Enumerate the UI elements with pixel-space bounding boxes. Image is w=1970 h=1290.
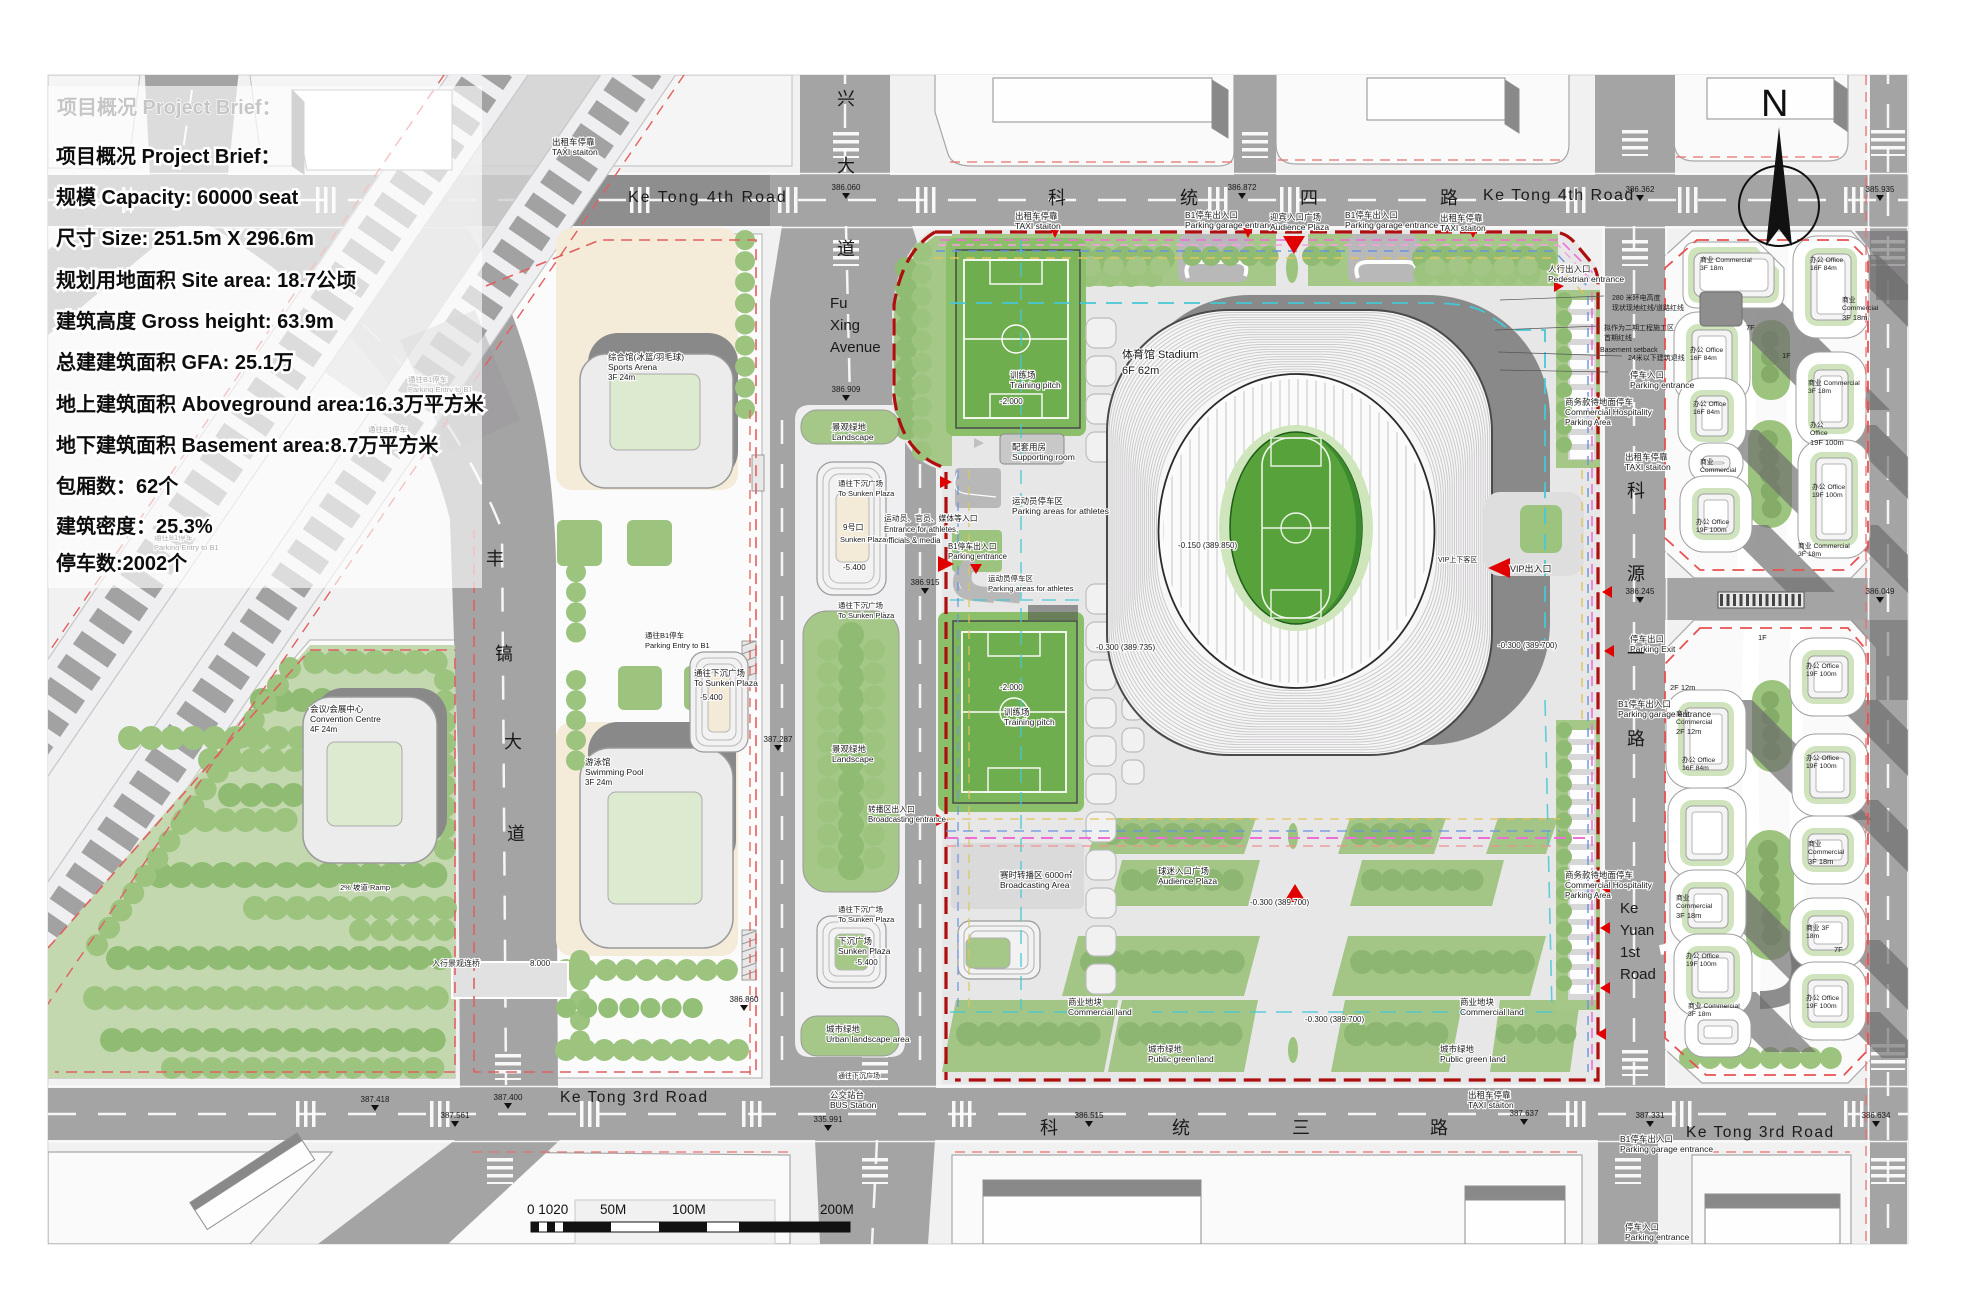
svg-text:-0.300 (389.700): -0.300 (389.700) [1305, 1015, 1364, 1024]
svg-text:Ke Tong 4th Road: Ke Tong 4th Road [628, 189, 788, 206]
svg-text:拟作为二期工程施工区: 拟作为二期工程施工区 [1604, 323, 1674, 332]
svg-text:Parking Entry to B1: Parking Entry to B1 [645, 641, 710, 650]
svg-text:386.872: 386.872 [1228, 183, 1257, 192]
svg-text:19F 100m: 19F 100m [1806, 1003, 1837, 1010]
svg-text:Broadcasting entrance: Broadcasting entrance [868, 815, 946, 824]
svg-text:景观绿地: 景观绿地 [832, 744, 867, 754]
svg-text:Sunken Plaza: Sunken Plaza [840, 535, 887, 544]
svg-text:商业 Commercial: 商业 Commercial [1688, 1001, 1740, 1010]
svg-text:3F 18m: 3F 18m [1808, 857, 1833, 866]
svg-text:规模 Capacity: 60000 seat: 规模 Capacity: 60000 seat [56, 185, 299, 209]
svg-text:商业: 商业 [1808, 839, 1822, 848]
svg-text:100M: 100M [672, 1202, 706, 1217]
svg-text:办公 Office: 办公 Office [1696, 517, 1729, 526]
svg-text:停车入口: 停车入口 [1625, 1222, 1659, 1232]
svg-text:现状现地红线/道路红线: 现状现地红线/道路红线 [1612, 303, 1684, 312]
svg-text:商业: 商业 [1676, 709, 1690, 718]
svg-text:办公 Office: 办公 Office [1693, 399, 1726, 408]
svg-text:0 1020: 0 1020 [527, 1202, 568, 1217]
svg-text:19F 100m: 19F 100m [1810, 438, 1844, 447]
svg-text:386.049: 386.049 [1866, 587, 1895, 596]
svg-text:Commercial: Commercial [1676, 719, 1713, 726]
svg-text:停车数:2002个: 停车数:2002个 [56, 551, 188, 575]
svg-text:3F 18m: 3F 18m [1842, 313, 1867, 322]
svg-text:Commercial land: Commercial land [1068, 1007, 1132, 1017]
svg-text:入行景观连桥: 入行景观连桥 [432, 958, 480, 968]
svg-text:Pedestrian entrance: Pedestrian entrance [1548, 274, 1624, 284]
svg-text:-5.400: -5.400 [855, 958, 878, 967]
svg-text:386.515: 386.515 [1075, 1111, 1104, 1120]
svg-text:B1停车出入口: B1停车出入口 [1620, 1134, 1673, 1144]
svg-text:Ke Tong 3rd Road: Ke Tong 3rd Road [560, 1089, 709, 1106]
svg-text:To Sunken Plaza: To Sunken Plaza [838, 611, 895, 620]
svg-text:Parking garage entrance: Parking garage entrance [1345, 220, 1438, 230]
svg-text:1F: 1F [1782, 351, 1791, 360]
svg-text:综合馆(冰篮/羽毛球): 综合馆(冰篮/羽毛球) [608, 352, 684, 362]
svg-text:商业 Commercial: 商业 Commercial [1700, 255, 1752, 264]
svg-text:19F 100m: 19F 100m [1696, 527, 1727, 534]
svg-text:Parking entrance: Parking entrance [1625, 1232, 1690, 1242]
svg-text:B1停车出入口: B1停车出入口 [1185, 210, 1238, 220]
svg-text:B1停车出入口: B1停车出入口 [1345, 210, 1398, 220]
svg-text:B1停车出入口: B1停车出入口 [948, 541, 997, 551]
svg-text:建筑高度 Gross height: 63.9m: 建筑高度 Gross height: 63.9m [56, 309, 334, 333]
svg-text:规划用地面积 Site area: 18.7公顷: 规划用地面积 Site area: 18.7公顷 [56, 269, 356, 292]
svg-text:3F 18m: 3F 18m [1676, 911, 1701, 920]
svg-text:Parking garage entrance: Parking garage entrance [1618, 709, 1711, 719]
svg-text:出租车停靠: 出租车停靠 [1625, 452, 1668, 462]
svg-text:6F 62m: 6F 62m [1122, 365, 1159, 377]
svg-text:2F 12m: 2F 12m [1670, 683, 1695, 692]
svg-text:一: 一 [1627, 644, 1645, 664]
svg-text:总建建筑面积 GFA: 25.1万: 总建建筑面积 GFA: 25.1万 [56, 350, 294, 374]
svg-text:Sunken Plaza: Sunken Plaza [838, 946, 891, 956]
svg-text:赛时转播区 6000㎡: 赛时转播区 6000㎡ [1000, 870, 1073, 880]
svg-text:建筑密度：25.3%: 建筑密度：25.3% [56, 514, 213, 538]
svg-text:通往下沉广场: 通往下沉广场 [838, 904, 883, 914]
svg-text:19F 100m: 19F 100m [1806, 763, 1837, 770]
svg-text:路: 路 [1440, 188, 1458, 208]
svg-text:280 米环电高度: 280 米环电高度 [1612, 293, 1661, 302]
svg-text:大: 大 [837, 156, 855, 176]
svg-text:Training pitch: Training pitch [1004, 717, 1055, 727]
svg-text:办公 Office: 办公 Office [1690, 345, 1723, 354]
svg-text:Supporting room: Supporting room [1012, 452, 1075, 462]
svg-text:386.634: 386.634 [1862, 1111, 1891, 1120]
svg-text:办公 Office: 办公 Office [1806, 753, 1839, 762]
svg-text:统: 统 [1180, 188, 1198, 208]
svg-text:首期红线: 首期红线 [1604, 333, 1632, 342]
svg-text:To Sunken Plaza: To Sunken Plaza [838, 489, 895, 498]
svg-text:To Sunken Plaza: To Sunken Plaza [694, 678, 758, 688]
svg-text:3F 18m: 3F 18m [1798, 551, 1821, 558]
svg-text:商业: 商业 [1676, 893, 1690, 902]
svg-text:通往下沉广场: 通往下沉广场 [838, 600, 883, 610]
svg-text:Swimming Pool: Swimming Pool [585, 767, 644, 777]
svg-text:4F 24m: 4F 24m [310, 725, 337, 734]
svg-text:停车入口: 停车入口 [1630, 370, 1664, 380]
svg-text:TAXI staiton: TAXI staiton [1440, 223, 1486, 233]
svg-text:通往下沉广场: 通往下沉广场 [838, 478, 883, 488]
svg-text:球迷入口广场: 球迷入口广场 [1158, 866, 1209, 876]
svg-text:1st: 1st [1620, 944, 1641, 961]
svg-text:387.400: 387.400 [494, 1093, 523, 1102]
svg-text:商务款待地面停车: 商务款待地面停车 [1565, 870, 1633, 880]
svg-text:迎宾入口广场: 迎宾入口广场 [1270, 212, 1321, 222]
svg-text:通往B1停车: 通往B1停车 [645, 630, 685, 640]
svg-text:387.287: 387.287 [764, 735, 793, 744]
svg-text:Parking garage entrance: Parking garage entrance [1620, 1144, 1713, 1154]
svg-text:-2.000: -2.000 [1000, 397, 1023, 406]
svg-text:2F 12m: 2F 12m [1676, 727, 1701, 736]
svg-text:尺寸 Size: 251.5m X 296.6m: 尺寸 Size: 251.5m X 296.6m [56, 227, 314, 250]
svg-text:商业地块: 商业地块 [1460, 997, 1495, 1007]
svg-text:386.060: 386.060 [832, 183, 861, 192]
svg-text:386.909: 386.909 [832, 385, 861, 394]
svg-text:B1停车出入口: B1停车出入口 [1618, 699, 1671, 709]
svg-text:出租车停靠: 出租车停靠 [1468, 1090, 1511, 1100]
svg-text:Convention Centre: Convention Centre [310, 714, 381, 724]
svg-text:-0.300 (389.700): -0.300 (389.700) [1498, 641, 1557, 650]
svg-text:Road: Road [1620, 966, 1656, 983]
svg-text:办公 Office: 办公 Office [1682, 755, 1715, 764]
svg-text:16F 84m: 16F 84m [1693, 409, 1720, 416]
svg-text:包厢数：62个: 包厢数：62个 [56, 474, 179, 498]
svg-text:Public green land: Public green land [1440, 1054, 1506, 1064]
svg-text:道: 道 [507, 824, 525, 844]
svg-text:Parking Area: Parking Area [1565, 891, 1611, 900]
svg-text:officials & media: officials & media [884, 536, 941, 545]
svg-text:办公 Office: 办公 Office [1812, 482, 1845, 491]
svg-text:运动员停车区: 运动员停车区 [988, 573, 1033, 583]
svg-text:16F 84m: 16F 84m [1690, 355, 1717, 362]
svg-text:Commercial land: Commercial land [1460, 1007, 1524, 1017]
svg-text:16F 84m: 16F 84m [1682, 765, 1709, 772]
svg-text:Ke: Ke [1620, 900, 1638, 917]
svg-text:9号口: 9号口 [843, 523, 863, 532]
svg-text:Xing: Xing [830, 317, 860, 334]
svg-text:停车出口: 停车出口 [1630, 634, 1664, 644]
svg-text:Landscape: Landscape [832, 754, 874, 764]
svg-text:城市绿地: 城市绿地 [826, 1024, 861, 1034]
svg-text:16F 84m: 16F 84m [1810, 265, 1837, 272]
svg-text:3F 18m: 3F 18m [1808, 388, 1831, 395]
svg-text:Commercial Hospitality: Commercial Hospitality [1565, 407, 1653, 417]
svg-text:办公 Office: 办公 Office [1806, 661, 1839, 670]
svg-text:路: 路 [1430, 1118, 1448, 1138]
svg-text:Commercial Hospitality: Commercial Hospitality [1565, 880, 1653, 890]
svg-text:公交站台: 公交站台 [830, 1090, 864, 1100]
svg-text:源: 源 [1627, 564, 1645, 584]
svg-text:Landscape: Landscape [832, 432, 874, 442]
svg-text:Avenue: Avenue [830, 339, 881, 356]
svg-text:Office: Office [1810, 430, 1828, 437]
svg-text:-2.000: -2.000 [1000, 683, 1023, 692]
svg-text:50M: 50M [600, 1202, 626, 1217]
svg-text:3F 24m: 3F 24m [608, 373, 635, 382]
svg-text:丰: 丰 [486, 549, 504, 569]
svg-text:Ke Tong 3rd Road: Ke Tong 3rd Road [1686, 1124, 1835, 1141]
svg-text:科: 科 [1627, 481, 1645, 501]
svg-text:Ke Tong 4th Road: Ke Tong 4th Road [1483, 187, 1635, 204]
svg-text:2% 坡道 Ramp: 2% 坡道 Ramp [340, 882, 390, 892]
svg-text:387.418: 387.418 [361, 1095, 390, 1104]
svg-text:Parking entrance: Parking entrance [948, 552, 1007, 561]
svg-text:Parking areas for athletes: Parking areas for athletes [1012, 506, 1109, 516]
svg-text:Audience Plaza: Audience Plaza [1158, 876, 1217, 886]
svg-text:3F 18m: 3F 18m [1688, 1011, 1711, 1018]
svg-text:386.245: 386.245 [1626, 587, 1655, 596]
svg-text:Broadcasting Area: Broadcasting Area [1000, 880, 1070, 890]
svg-text:运动员停车区: 运动员停车区 [1012, 496, 1064, 506]
svg-text:3F 24m: 3F 24m [585, 778, 612, 787]
svg-text:19F 100m: 19F 100m [1812, 492, 1843, 499]
svg-text:TAXI staiton: TAXI staiton [1468, 1100, 1514, 1110]
svg-text:Commercial: Commercial [1676, 903, 1713, 910]
svg-text:项目概况 Project Brief：: 项目概况 Project Brief： [57, 96, 281, 119]
svg-text:训练场: 训练场 [1010, 370, 1036, 380]
svg-text:VIP上下客区: VIP上下客区 [1438, 555, 1477, 564]
svg-text:通往下沉广场: 通往下沉广场 [838, 1071, 880, 1080]
svg-text:19F 100m: 19F 100m [1806, 671, 1837, 678]
svg-text:Basement setback: Basement setback [1600, 347, 1658, 354]
svg-text:TAXI staiton: TAXI staiton [1625, 462, 1671, 472]
svg-text:3F 18m: 3F 18m [1700, 265, 1723, 272]
svg-text:游泳馆: 游泳馆 [585, 757, 611, 767]
svg-text:运动员、官员、媒体等入口: 运动员、官员、媒体等入口 [884, 513, 978, 523]
svg-text:385.935: 385.935 [1866, 185, 1895, 194]
svg-text:386.915: 386.915 [911, 578, 940, 587]
svg-text:商业 Commercial: 商业 Commercial [1798, 541, 1850, 550]
svg-text:-0.150 (389.850): -0.150 (389.850) [1178, 541, 1237, 550]
svg-text:VIP出入口: VIP出入口 [1510, 563, 1552, 574]
svg-text:TAXI staiton: TAXI staiton [1015, 221, 1061, 231]
svg-text:地上建筑面积 Aboveground area:16.3万平: 地上建筑面积 Aboveground area:16.3万平方米 [56, 392, 485, 416]
svg-text:商业: 商业 [1842, 295, 1856, 304]
svg-text:办公 Office: 办公 Office [1806, 993, 1839, 1002]
svg-text:-0.300 (389.735): -0.300 (389.735) [1096, 643, 1155, 652]
svg-text:Commercial: Commercial [1808, 849, 1845, 856]
svg-text:Audience Plaza: Audience Plaza [1270, 222, 1329, 232]
svg-text:科: 科 [1040, 1118, 1058, 1138]
svg-text:下沉广场: 下沉广场 [838, 936, 872, 946]
svg-text:镐: 镐 [495, 644, 513, 664]
svg-text:Sports Arena: Sports Arena [608, 362, 657, 372]
svg-text:18m: 18m [1806, 933, 1820, 940]
svg-text:Parking entrance: Parking entrance [1630, 380, 1695, 390]
svg-text:出租车停靠: 出租车停靠 [1440, 213, 1483, 223]
svg-text:人行出入口: 人行出入口 [1548, 264, 1591, 274]
svg-text:商务款待地面停车: 商务款待地面停车 [1565, 397, 1633, 407]
svg-text:办公 Office: 办公 Office [1686, 951, 1719, 960]
svg-text:Fu: Fu [830, 295, 848, 312]
svg-text:办公: 办公 [1810, 420, 1824, 429]
svg-text:19F 100m: 19F 100m [1686, 961, 1717, 968]
svg-text:兴: 兴 [837, 89, 855, 109]
svg-text:BUS Station: BUS Station [830, 1100, 877, 1110]
svg-text:8.000: 8.000 [530, 959, 551, 968]
svg-text:Urban landscape area: Urban landscape area [826, 1034, 910, 1044]
svg-text:Parking garage entrance: Parking garage entrance [1185, 220, 1278, 230]
svg-text:景观绿地: 景观绿地 [832, 422, 867, 432]
svg-text:商业 3F: 商业 3F [1806, 923, 1829, 932]
svg-text:Parking Area: Parking Area [1565, 418, 1611, 427]
svg-text:N: N [1761, 83, 1788, 125]
svg-text:-5.400: -5.400 [843, 563, 866, 572]
svg-text:地下建筑面积 Basement area:8.7万平方米: 地下建筑面积 Basement area:8.7万平方米 [56, 433, 439, 457]
svg-text:城市绿地: 城市绿地 [1440, 1044, 1475, 1054]
svg-text:科: 科 [1048, 188, 1066, 208]
svg-text:转播区出入口: 转播区出入口 [868, 804, 915, 814]
svg-text:200M: 200M [820, 1202, 854, 1217]
svg-text:1F: 1F [1758, 633, 1767, 642]
svg-text:出租车停靠: 出租车停靠 [1015, 211, 1058, 221]
svg-text:出租车停靠: 出租车停靠 [552, 137, 595, 147]
svg-text:-0.300 (389.700): -0.300 (389.700) [1250, 898, 1309, 907]
svg-text:项目概况 Project Brief：: 项目概况 Project Brief： [56, 145, 280, 168]
svg-text:Entrance for athletes,: Entrance for athletes, [884, 525, 958, 534]
svg-text:24米以下建筑退线: 24米以下建筑退线 [1628, 353, 1685, 362]
svg-text:386.860: 386.860 [730, 995, 759, 1004]
svg-text:商业 Commercial: 商业 Commercial [1808, 378, 1860, 387]
svg-text:7F: 7F [1834, 945, 1843, 954]
svg-text:通往下沉广场: 通往下沉广场 [694, 668, 745, 678]
svg-text:Commercial: Commercial [1700, 467, 1737, 474]
svg-text:路: 路 [1627, 729, 1645, 749]
svg-text:商业: 商业 [1700, 457, 1714, 466]
svg-text:-5.400: -5.400 [700, 693, 723, 702]
svg-text:TAXI staiton: TAXI staiton [552, 147, 598, 157]
svg-text:城市绿地: 城市绿地 [1148, 1044, 1183, 1054]
svg-text:387.637: 387.637 [1510, 1109, 1539, 1118]
svg-text:办公 Office: 办公 Office [1810, 255, 1843, 264]
svg-text:To Sunken Plaza: To Sunken Plaza [838, 915, 895, 924]
svg-text:道: 道 [837, 239, 855, 259]
svg-text:会议/会展中心: 会议/会展中心 [310, 704, 364, 714]
svg-text:商业地块: 商业地块 [1068, 997, 1103, 1007]
svg-text:Yuan: Yuan [1620, 922, 1654, 939]
svg-text:统: 统 [1172, 1118, 1190, 1138]
svg-text:大: 大 [504, 732, 522, 752]
svg-text:体育馆 Stadium: 体育馆 Stadium [1122, 347, 1198, 361]
svg-text:7F: 7F [1746, 323, 1755, 332]
svg-text:335.991: 335.991 [814, 1115, 843, 1124]
svg-text:配套用房: 配套用房 [1012, 442, 1046, 452]
svg-text:387.331: 387.331 [1636, 1111, 1665, 1120]
svg-text:Parking areas for athletes: Parking areas for athletes [988, 584, 1074, 593]
svg-text:387.561: 387.561 [441, 1111, 470, 1120]
svg-text:Commercial: Commercial [1842, 305, 1879, 312]
svg-text:训练场: 训练场 [1004, 707, 1030, 717]
svg-text:四: 四 [1300, 188, 1318, 208]
svg-text:三: 三 [1292, 1118, 1310, 1138]
svg-text:Public green land: Public green land [1148, 1054, 1214, 1064]
svg-text:Training pitch: Training pitch [1010, 380, 1061, 390]
